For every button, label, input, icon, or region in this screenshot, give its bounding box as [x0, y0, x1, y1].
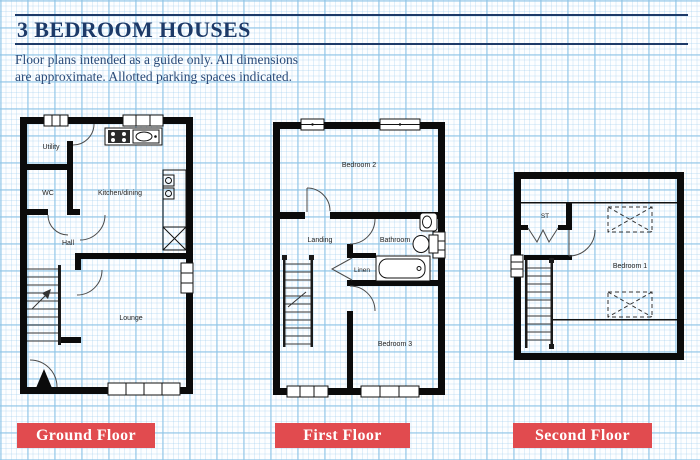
door-arc-lounge — [77, 270, 102, 295]
entrance-arrow-icon — [36, 369, 52, 388]
door-bedroom2 — [307, 188, 330, 212]
room-label-linen: Linen — [354, 267, 370, 274]
header-rule-bottom — [15, 43, 688, 45]
headroom-line-top — [521, 202, 677, 204]
door-arc-bathroom — [350, 219, 375, 244]
door-arc-wc — [48, 215, 68, 235]
window — [361, 386, 419, 397]
room-label-bathroom: Bathroom — [380, 237, 411, 244]
window — [511, 255, 523, 277]
room-label-storage: ST — [541, 213, 549, 220]
folding-doors — [528, 228, 558, 242]
room-label-bedroom1: Bedroom 1 — [613, 263, 647, 270]
toilet — [413, 235, 438, 253]
first-floor-plan: Bedroom 2 Landing Bathroom Linen Bedroom… — [273, 122, 445, 395]
room-label-landing: Landing — [308, 237, 333, 244]
disclaimer-line-1: Floor plans intended as a guide only. Al… — [15, 52, 298, 67]
page-title: 3 BEDROOM HOUSES — [17, 17, 251, 43]
skylight — [608, 207, 652, 232]
door-arc-bedroom3 — [350, 286, 375, 311]
window — [44, 115, 68, 126]
room-label-bedroom2: Bedroom 2 — [342, 162, 376, 169]
ground-floor-plan: Utility WC Kitchen/dining Hall Lounge — [20, 117, 193, 394]
staircase — [525, 258, 554, 349]
door-arc-kitchen — [80, 215, 105, 240]
door-arc-utility — [73, 124, 94, 145]
kitchen-counter — [105, 128, 162, 145]
room-label-wc: WC — [42, 190, 54, 197]
room-label-kitchen: Kitchen/dining — [98, 190, 142, 197]
staircase — [27, 265, 61, 345]
headroom-line-bottom — [553, 319, 677, 321]
window — [181, 263, 193, 293]
room-label-lounge: Lounge — [119, 315, 142, 322]
room-label-hall: Hall — [62, 240, 75, 247]
door-storage — [569, 230, 595, 256]
window — [380, 119, 420, 130]
linen-doors — [332, 258, 352, 280]
window — [123, 115, 163, 126]
kitchen-units — [163, 170, 186, 250]
bathroom-sink — [420, 213, 437, 231]
disclaimer-note: Floor plans intended as a guide only. Al… — [15, 51, 298, 85]
header-rule-top — [15, 14, 688, 16]
walls — [20, 117, 193, 394]
staircase — [282, 255, 314, 347]
window — [301, 119, 324, 130]
window — [108, 383, 180, 395]
disclaimer-line-2: are approximate. Allotted parking spaces… — [15, 69, 292, 84]
bathtub — [376, 256, 430, 281]
second-floor-plan: ST Bedroom 1 — [514, 172, 684, 360]
second-floor-tag: Second Floor — [513, 423, 652, 448]
room-label-bedroom3: Bedroom 3 — [378, 341, 412, 348]
floor-plan-sheet: 3 BEDROOM HOUSES Floor plans intended as… — [0, 0, 700, 460]
skylight — [608, 292, 652, 317]
window — [287, 386, 328, 397]
room-label-utility: Utility — [42, 144, 60, 151]
ground-floor-tag: Ground Floor — [17, 423, 155, 448]
first-floor-tag: First Floor — [275, 423, 410, 448]
